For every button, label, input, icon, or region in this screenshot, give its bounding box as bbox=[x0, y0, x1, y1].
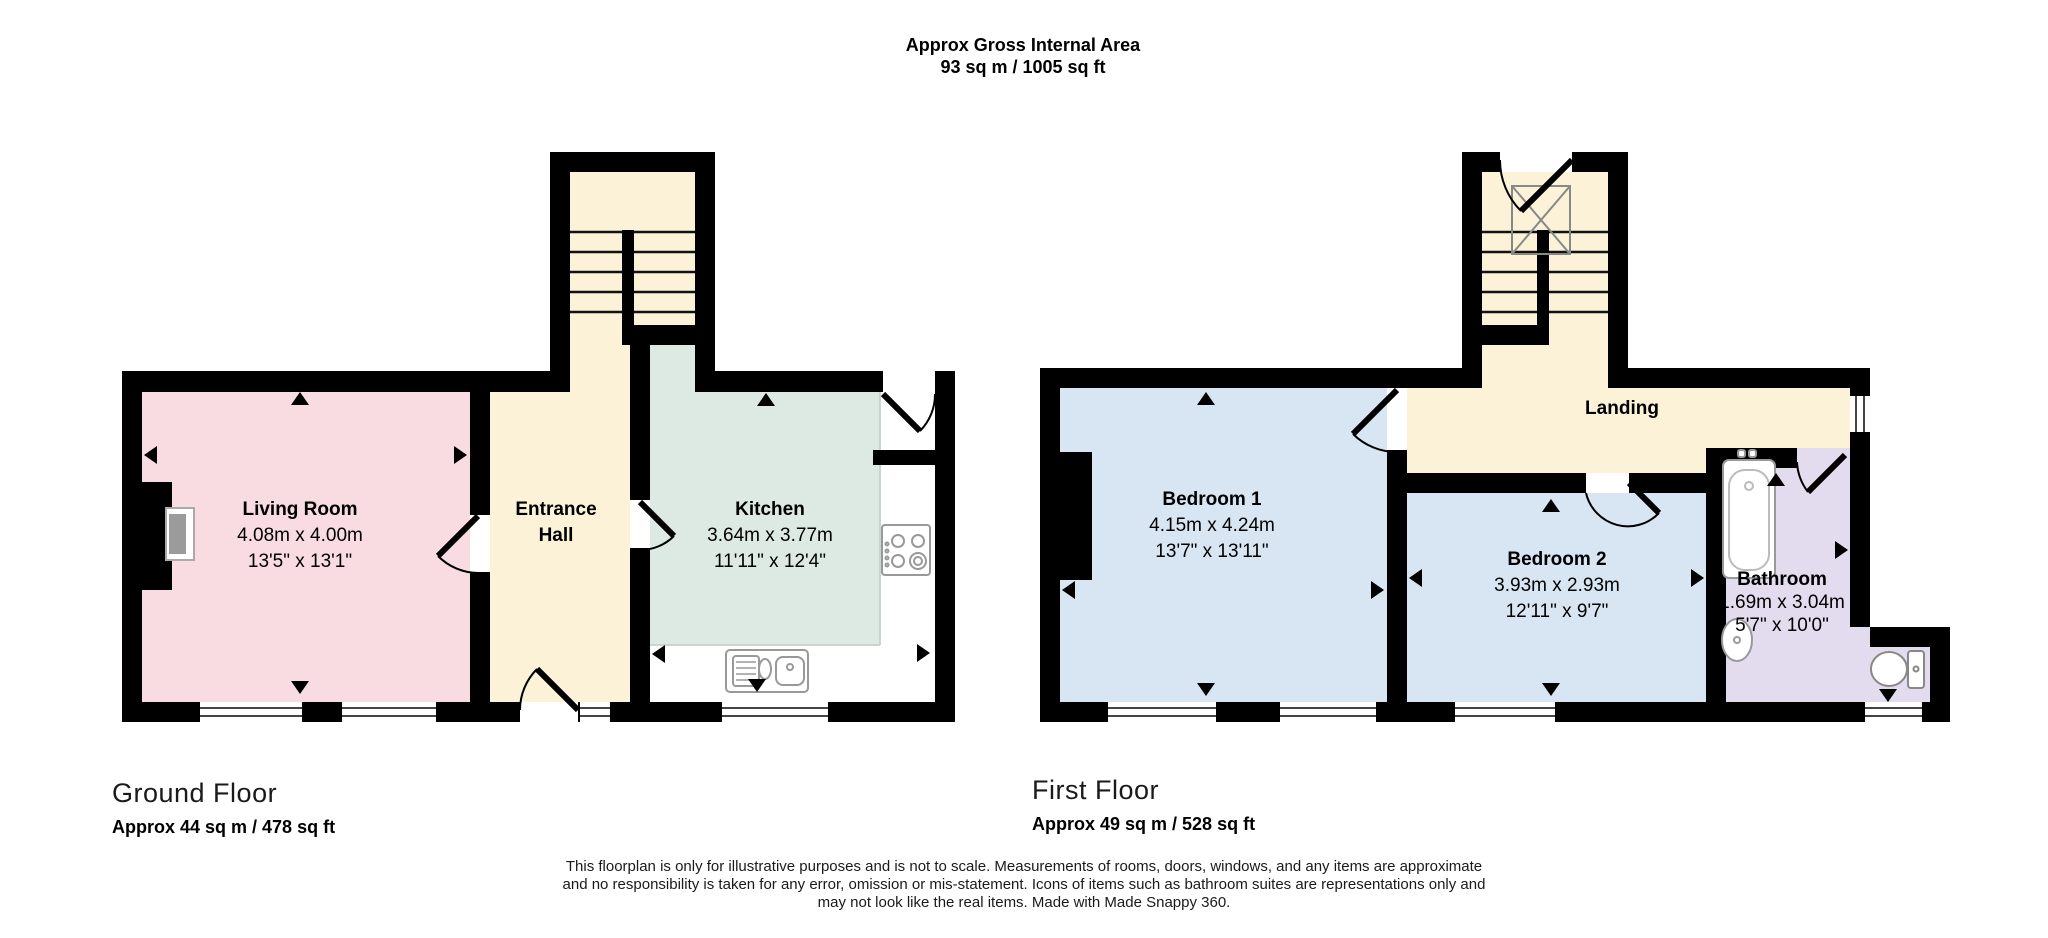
title-line-2: 93 sq m / 1005 sq ft bbox=[906, 56, 1140, 78]
chimney-breast bbox=[122, 482, 172, 590]
bath-icon bbox=[1723, 450, 1775, 578]
room-label-bedroom-1: Bedroom 1 4.15m x 4.24m 13'7" x 13'11" bbox=[1149, 487, 1275, 565]
title-line-1: Approx Gross Internal Area bbox=[906, 34, 1140, 56]
disclaimer-line-2: and no responsibility is taken for any e… bbox=[0, 876, 2048, 894]
ground-floor-title: Ground Floor bbox=[112, 778, 335, 809]
ground-floor-caption: Ground Floor Approx 44 sq m / 478 sq ft bbox=[112, 778, 335, 838]
first-floor-title: First Floor bbox=[1032, 775, 1255, 806]
chimney-breast bbox=[1040, 452, 1092, 580]
fireplace-icon bbox=[166, 508, 194, 560]
disclaimer-line-3: may not look like the real items. Made w… bbox=[0, 894, 2048, 912]
room-label-entrance-hall: Entrance Hall bbox=[504, 497, 608, 549]
sink-icon bbox=[726, 650, 808, 692]
ground-floor-area: Approx 44 sq m / 478 sq ft bbox=[112, 817, 335, 838]
floorplan-canvas: Approx Gross Internal Area 93 sq m / 100… bbox=[0, 0, 2048, 938]
room-label-bathroom: Bathroom 1.69m x 3.04m 5'7" x 10'0" bbox=[1719, 568, 1845, 637]
disclaimer-line-1: This floorplan is only for illustrative … bbox=[0, 858, 2048, 876]
first-floor-caption: First Floor Approx 49 sq m / 528 sq ft bbox=[1032, 775, 1255, 835]
room-label-landing: Landing bbox=[1585, 396, 1659, 422]
room-label-bedroom-2: Bedroom 2 3.93m x 2.93m 12'11" x 9'7" bbox=[1494, 547, 1620, 625]
first-floor-area: Approx 49 sq m / 528 sq ft bbox=[1032, 814, 1255, 835]
hob-icon bbox=[882, 525, 930, 575]
toilet-icon bbox=[1871, 651, 1924, 688]
ground-floor-plan bbox=[122, 152, 955, 722]
room-label-living-room: Living Room 4.08m x 4.00m 13'5" x 13'1" bbox=[237, 497, 363, 575]
room-label-kitchen: Kitchen 3.64m x 3.77m 11'11" x 12'4" bbox=[707, 497, 833, 575]
page-title: Approx Gross Internal Area 93 sq m / 100… bbox=[906, 34, 1140, 78]
disclaimer-text: This floorplan is only for illustrative … bbox=[0, 858, 2048, 912]
